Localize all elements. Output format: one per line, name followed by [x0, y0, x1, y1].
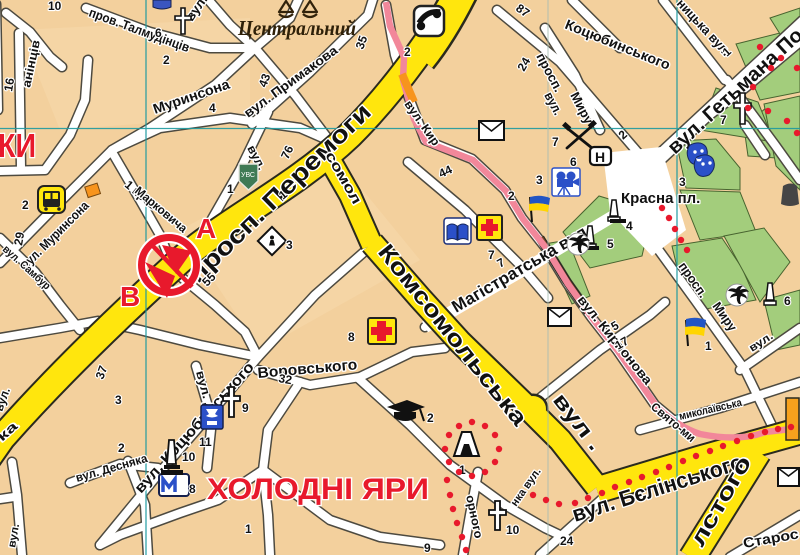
svg-text:Центральний: Центральний: [237, 16, 356, 40]
svg-text:Н: Н: [595, 149, 605, 165]
svg-text:А: А: [196, 213, 216, 244]
svg-text:24: 24: [560, 534, 574, 548]
svg-text:7: 7: [488, 248, 495, 262]
svg-text:32: 32: [277, 371, 293, 387]
svg-text:В: В: [120, 281, 140, 312]
svg-text:7: 7: [720, 113, 727, 127]
svg-text:2: 2: [163, 53, 170, 67]
svg-text:9: 9: [242, 401, 249, 415]
svg-text:1: 1: [245, 522, 252, 536]
svg-text:6: 6: [155, 26, 162, 40]
svg-text:10: 10: [506, 523, 520, 537]
svg-text:3: 3: [679, 175, 686, 189]
svg-text:5: 5: [607, 237, 614, 251]
svg-text:4: 4: [626, 219, 633, 233]
svg-text:3: 3: [286, 238, 293, 252]
svg-text:2: 2: [118, 441, 125, 455]
svg-text:1: 1: [227, 182, 234, 196]
svg-text:10: 10: [48, 0, 62, 13]
svg-text:ХОЛОДНІ ЯРИ: ХОЛОДНІ ЯРИ: [207, 473, 429, 506]
svg-text:4: 4: [209, 101, 216, 115]
svg-text:УВС: УВС: [241, 172, 255, 179]
svg-text:2: 2: [404, 45, 411, 59]
svg-text:3: 3: [536, 173, 543, 187]
svg-text:2: 2: [22, 198, 29, 212]
svg-text:Красна пл.: Красна пл.: [621, 190, 700, 207]
svg-text:1: 1: [705, 339, 712, 353]
svg-text:6: 6: [784, 294, 791, 308]
svg-text:2: 2: [508, 189, 515, 203]
svg-text:29: 29: [11, 231, 27, 247]
svg-text:16: 16: [1, 77, 17, 93]
svg-text:8: 8: [348, 330, 355, 344]
svg-text:9: 9: [424, 541, 431, 555]
svg-text:7: 7: [552, 135, 559, 149]
svg-text:6: 6: [570, 155, 577, 169]
svg-text:КИ: КИ: [0, 127, 36, 164]
svg-text:3: 3: [115, 393, 122, 407]
svg-text:2: 2: [427, 411, 434, 425]
svg-text:8: 8: [189, 482, 196, 496]
svg-text:11: 11: [199, 435, 212, 449]
svg-text:10: 10: [182, 450, 196, 464]
